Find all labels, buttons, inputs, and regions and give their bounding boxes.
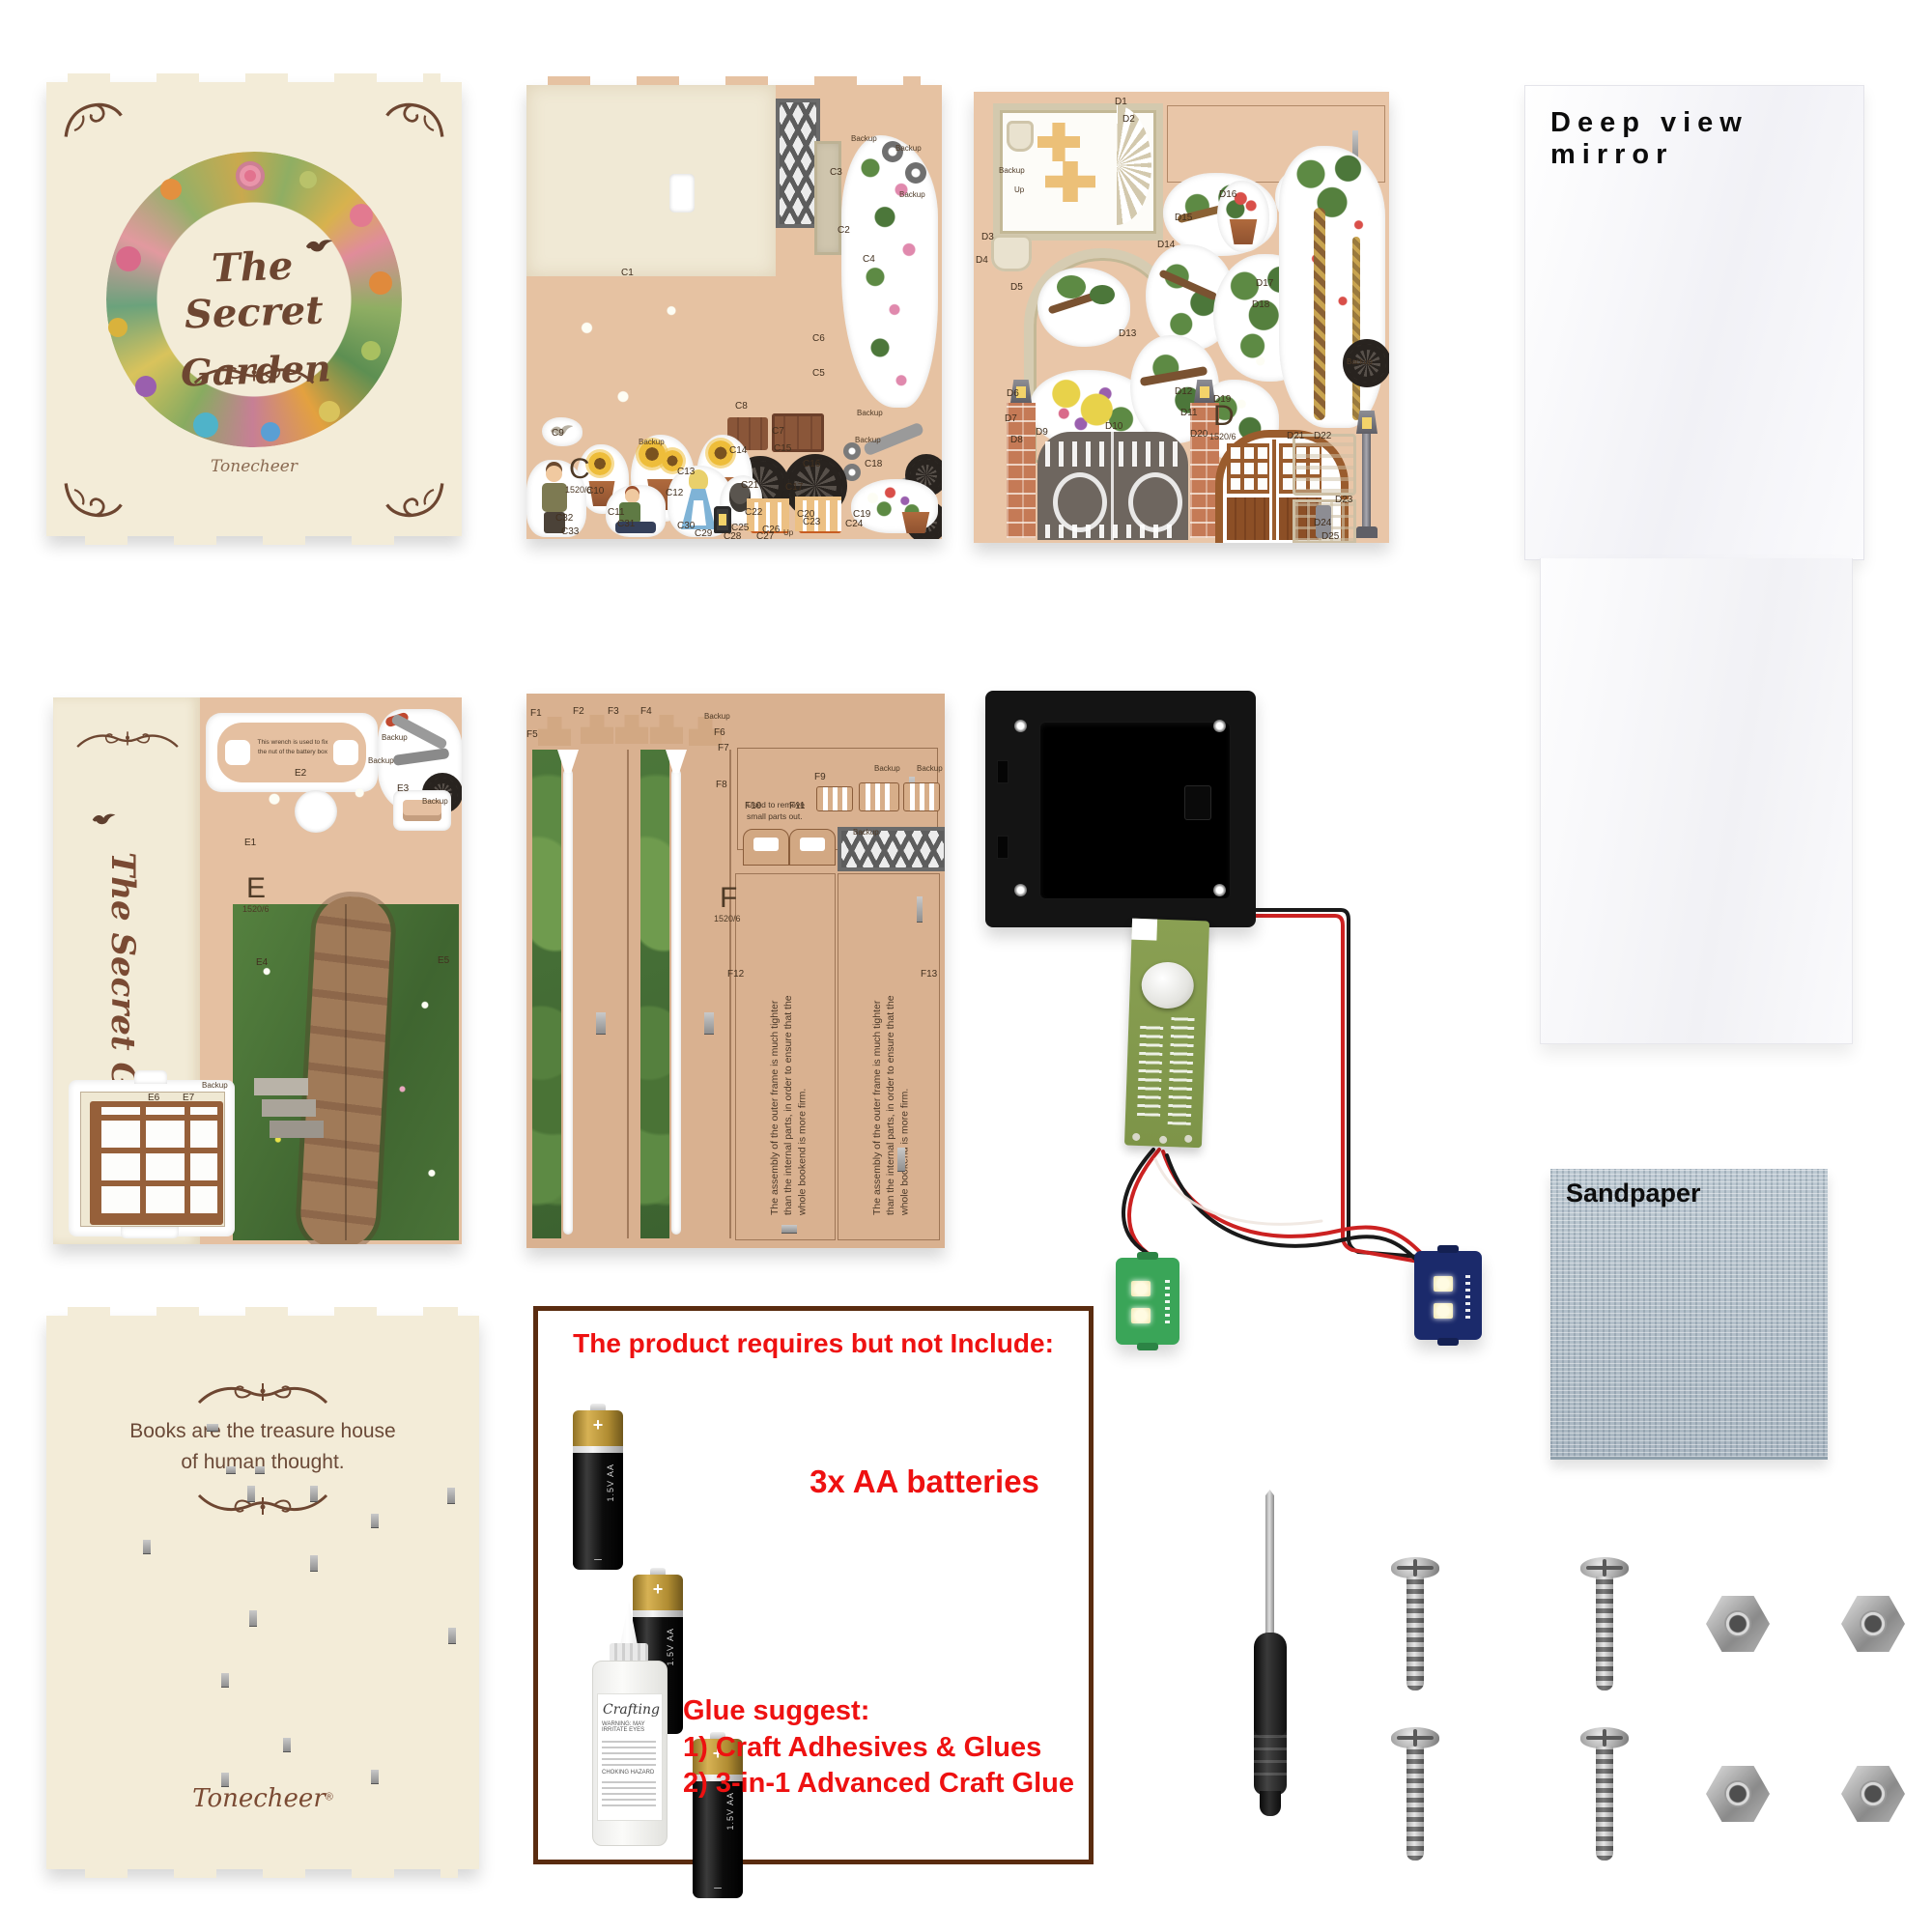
pcb-silkscreen-icon [1137, 1023, 1163, 1117]
clip-part [743, 829, 789, 866]
door-panel-icon [1227, 497, 1269, 540]
wreath-flower-icon [261, 422, 280, 441]
wheelbarrow-frame-part [863, 421, 924, 456]
gate-lamp-icon [1010, 380, 1032, 403]
battery-box [985, 691, 1256, 927]
remove-note: Used to remove small parts out. [747, 800, 816, 823]
module-notch-icon [1437, 1245, 1459, 1253]
battery-minus-label: – [693, 1879, 743, 1894]
garden-path-part [233, 904, 459, 1240]
wreath-flower-icon [350, 204, 373, 227]
tree-trunk-icon [1314, 208, 1325, 420]
crate-part [772, 413, 824, 452]
battery-plus-label: + [573, 1415, 623, 1435]
gate-scroll-icon [1053, 472, 1107, 532]
lamp-base-icon [1356, 526, 1378, 538]
cut-slot [897, 1148, 905, 1171]
quote-line1: Books are the treasure house [46, 1416, 479, 1447]
back-panel-brand: Tonecheer® [46, 1784, 479, 1813]
label-fineprint-icon [602, 1741, 656, 1766]
gate-bars-icon [1045, 441, 1107, 467]
iron-gate-part [1037, 432, 1188, 540]
leaf-cluster-icon [1057, 275, 1086, 298]
screwdriver-shaft-icon [1265, 1490, 1274, 1636]
cut-slot [917, 896, 923, 922]
panel-slot [310, 1555, 318, 1571]
gate-lamp-icon [1194, 380, 1215, 403]
solder-pad-icon [1184, 1135, 1192, 1143]
gate-scroll-icon [1128, 472, 1182, 532]
panel-cut-line [729, 750, 731, 1238]
remove-note-line1: Used to remove [747, 800, 805, 810]
screwdriver [1250, 1490, 1291, 1818]
wheel-part [1343, 339, 1389, 387]
figure-body-icon [619, 502, 640, 524]
vine-icon [1352, 237, 1360, 420]
sheet-f-letter: F [720, 885, 737, 911]
panel-slot [310, 1486, 318, 1501]
screw-hole-icon [1213, 884, 1226, 896]
battery-voltage-label: 1.5V AA [606, 1463, 615, 1502]
deep-view-mirror: Deep view mirror [1524, 85, 1864, 560]
wreath-flower-icon [369, 271, 392, 295]
glue-warning2: CHOKING HAZARD [602, 1770, 654, 1776]
door-seam-icon [1272, 440, 1276, 540]
cut-slit [671, 769, 681, 1235]
bracket-icon [403, 800, 441, 821]
bottle-tip-icon [613, 1601, 644, 1645]
sheet-e-graphics: The Secret Garden This wrench is used to… [53, 697, 462, 1244]
assembly-note: The assembly of the outer frame is much … [768, 983, 810, 1215]
spine-flourish-icon [74, 728, 181, 752]
bracket-part [615, 715, 648, 744]
clip-slot-icon [753, 838, 779, 851]
screw-head-icon [1391, 1727, 1439, 1748]
cover-tab-edge-top [68, 73, 440, 83]
panel-slot [255, 1466, 265, 1473]
sheet-d-code: 1520/6 [1209, 432, 1236, 441]
bracket-part [689, 717, 722, 746]
screw-hole-icon [1213, 720, 1226, 732]
corner-flourish-icon [64, 478, 128, 523]
battery-plus-label: + [633, 1579, 683, 1600]
comb-part [903, 782, 940, 811]
gate-bars-icon [1119, 441, 1180, 467]
clip-part [789, 829, 836, 866]
panel-slot [247, 1486, 255, 1501]
figure-hair-icon [689, 469, 708, 491]
sunflower-icon [662, 450, 683, 471]
registered-mark: ® [326, 1792, 333, 1804]
door-window-grid-icon [1227, 443, 1269, 494]
panel-slot [371, 1770, 379, 1783]
wreath-flower-icon [236, 161, 265, 190]
pcb-notch-icon [1131, 919, 1157, 941]
lattice-window-part [90, 1101, 223, 1225]
brand-text: Tonecheer [192, 1784, 326, 1813]
case-slot-icon [997, 760, 1009, 783]
washer-part [843, 442, 861, 460]
corner-flourish-icon [64, 98, 128, 142]
sheet-d-graphics [974, 92, 1389, 543]
panel-slot [207, 1424, 218, 1431]
corner-flourish-icon [381, 478, 444, 523]
sandpaper-sheet: Sandpaper [1550, 1169, 1828, 1460]
aa-battery: + 1.5V AA – [573, 1404, 623, 1570]
title-flourish-icon [191, 362, 317, 387]
solder-pad-icon [1132, 1133, 1140, 1141]
panel-slot [371, 1514, 379, 1527]
back-panel: Books are the treasure house of human th… [46, 1316, 479, 1869]
foliage-edge-part [532, 750, 561, 1238]
corner-flourish-icon [381, 98, 444, 142]
led-chip-icon [1434, 1303, 1453, 1319]
screw-hole-icon [1014, 884, 1027, 896]
panel-slot [221, 1673, 229, 1687]
back-panel-tab-edge-top [68, 1307, 458, 1317]
swirl-tile-part [991, 235, 1032, 271]
wrench-note-line1: This wrench is used to fix [258, 739, 328, 746]
hex-nut [1841, 1596, 1905, 1652]
screw-shank-icon [1596, 1747, 1613, 1861]
battery-band-icon [573, 1446, 623, 1453]
sheet-c-code: 1520/6 [565, 485, 592, 495]
lid-latch-icon [1184, 785, 1211, 820]
wrench-note-line2: the nut of the battery box [258, 749, 327, 755]
bottle-cap-icon [610, 1643, 648, 1662]
figure-head-icon [625, 489, 639, 503]
stone-steps-icon [262, 1099, 316, 1117]
stone-steps-icon [270, 1121, 324, 1138]
trellis-part [838, 827, 945, 871]
wreath-flower-icon [319, 401, 340, 422]
led-module-green [1116, 1258, 1179, 1345]
bracket-part [538, 717, 571, 746]
sheet-c-letter: C [569, 456, 590, 482]
panel-slot [143, 1540, 151, 1553]
assembly-note: The assembly of the outer frame is much … [870, 983, 913, 1215]
cut-slit [563, 769, 573, 1235]
wrench-part: This wrench is used to fix the nut of th… [217, 723, 366, 782]
street-lamp-icon [1356, 411, 1378, 434]
parts-sheet-d: D1D2D3D4D5D6D7D8D9D10D11D12D13D14D15D16D… [974, 92, 1389, 543]
glue-warning: WARNING: MAY IRRITATE EYES [602, 1721, 658, 1733]
comb-part [816, 786, 853, 811]
panel-slot [283, 1738, 291, 1751]
bird-icon [92, 811, 117, 828]
panel-cut-line [345, 904, 347, 1240]
machine-screw [1580, 1557, 1629, 1694]
glue-suggest-line1: 1) Craft Adhesives & Glues [683, 1730, 1074, 1767]
panel-cut-line [627, 750, 629, 1238]
hex-nut [1841, 1766, 1905, 1822]
battery-group: + 1.5V AA – + 1.5V AA – + [573, 1400, 747, 1574]
not-included-box: The product requires but not Include: + … [533, 1306, 1094, 1864]
handle-tip-icon [1260, 1791, 1281, 1816]
cover-brand: Tonecheer [46, 457, 462, 476]
clip-slot-icon [800, 838, 825, 851]
solder-pad-icon [1159, 1136, 1167, 1144]
handle-ridges-icon [1254, 1731, 1287, 1785]
module-silkscreen-icon [1465, 1274, 1470, 1319]
hex-nut [1706, 1766, 1770, 1822]
hedge-hole-icon [295, 790, 337, 833]
stone-steps-icon [254, 1078, 308, 1095]
sheet-d-letter: D [1213, 403, 1235, 429]
glue-suggestion: Glue suggest: 1) Craft Adhesives & Glues… [683, 1693, 1074, 1803]
sunflower-icon [708, 440, 733, 466]
mirror-label: Deep view mirror [1550, 107, 1863, 171]
panel-slot [447, 1488, 455, 1503]
leaf-cluster-icon [1090, 285, 1115, 304]
canvas-slot [669, 174, 695, 213]
bench-part [1293, 434, 1356, 496]
cut-slot [596, 1012, 606, 1034]
module-notch-icon [1137, 1343, 1158, 1350]
figure-head-icon [546, 466, 562, 482]
wreath-flower-icon [108, 318, 128, 337]
bird-icon [550, 423, 575, 439]
machine-screw [1580, 1727, 1629, 1864]
machine-screw [1391, 1727, 1439, 1864]
led-chip-icon [1131, 1308, 1151, 1323]
glue-suggest-line2: 2) 3-in-1 Advanced Craft Glue [683, 1766, 1074, 1803]
sunflower-icon [588, 452, 611, 475]
lamp-post-part [1362, 432, 1371, 528]
screw-hole-icon [1014, 720, 1027, 732]
screw-head-icon [1580, 1727, 1629, 1748]
parts-sheet-f: Used to remove small parts out. The asse… [526, 694, 945, 1248]
washer-part [882, 141, 903, 162]
sheet-f-code: 1520/6 [714, 914, 741, 923]
post-part [1316, 505, 1331, 538]
figure-legs-icon [615, 522, 656, 533]
figure-body-icon [542, 483, 567, 512]
wreath-flower-icon [299, 171, 317, 188]
module-notch-icon [1137, 1252, 1158, 1260]
wrench-socket-icon [225, 740, 250, 765]
remove-note-line2: small parts out. [747, 811, 803, 821]
wrench-note: This wrench is used to fix the nut of th… [254, 738, 331, 757]
wrench-socket-icon [333, 740, 358, 765]
gate-seam-icon [1111, 432, 1114, 540]
case-slot-icon [997, 836, 1009, 859]
screw-shank-icon [1406, 1577, 1424, 1690]
panel-slot [448, 1628, 456, 1643]
led-chip-icon [1131, 1281, 1151, 1296]
not-included-title: The product requires but not Include: [538, 1328, 1089, 1359]
screw-shank-icon [1596, 1577, 1613, 1690]
window-knob-icon [134, 1070, 167, 1084]
brick-pillar-part [1007, 403, 1036, 538]
cover-panel: The Secret Garden Tonecheer [46, 82, 462, 536]
label-fineprint-icon [602, 1781, 656, 1806]
parts-sheet-e: The Secret Garden This wrench is used to… [53, 697, 462, 1244]
back-panel-tab-edge-bottom [68, 1868, 458, 1878]
sheet-e-code: 1520/6 [242, 904, 270, 914]
sandpaper-label: Sandpaper [1566, 1179, 1701, 1208]
machine-screw [1391, 1557, 1439, 1694]
panel-slot [249, 1610, 257, 1626]
module-notch-icon [1437, 1338, 1459, 1346]
bottle-label: Crafting Glue WARNING: MAY IRRITATE EYES… [597, 1693, 663, 1821]
sheet-f-graphics: Used to remove small parts out. The asse… [526, 694, 945, 1248]
lantern-glow-icon [719, 514, 726, 526]
comb-part [859, 782, 899, 811]
glue-bottle: Crafting Glue WARNING: MAY IRRITATE EYES… [584, 1601, 673, 1848]
screw-shank-icon [1406, 1747, 1424, 1861]
glue-suggest-title: Glue suggest: [683, 1693, 1074, 1730]
wreath-flower-icon [160, 179, 182, 200]
screw-head-icon [1391, 1557, 1439, 1578]
led-module-blue [1414, 1251, 1482, 1340]
foliage-edge-part [640, 750, 669, 1238]
swirl-tile-part [1007, 121, 1034, 152]
fence-part [795, 497, 841, 531]
figure-legs-icon [544, 512, 565, 533]
pcb-silkscreen-icon [1168, 1016, 1195, 1125]
cover-title-line1: The Secret [135, 241, 370, 339]
led-chip-icon [1434, 1276, 1453, 1292]
canvas-blank-part [526, 85, 776, 276]
stone-pillar-part [814, 141, 841, 255]
wreath-flower-icon [193, 412, 218, 438]
window-tab-icon [121, 1227, 179, 1238]
kit-contents-photo: The Secret Garden Tonecheer [0, 0, 1932, 1932]
cover-tab-edge-bottom [68, 535, 440, 545]
sheet-e-letter: E [246, 875, 266, 901]
washer-part [905, 162, 926, 184]
battery-minus-label: – [573, 1550, 623, 1566]
batteries-caption: 3x AA batteries [780, 1463, 1069, 1500]
panel-slot [226, 1466, 236, 1473]
hex-nut [1706, 1596, 1770, 1652]
pir-sensor-icon [1141, 961, 1195, 1009]
cut-slot [704, 1012, 714, 1034]
bracket-part [581, 715, 613, 744]
parts-sheet-c: C1C2C3C4C5C6C7C8C9C10C11C12C13C14C15C16C… [526, 85, 942, 539]
glue-brand: Crafting Glue [603, 1702, 662, 1718]
fence-part [747, 498, 789, 531]
module-silkscreen-icon [1165, 1279, 1170, 1323]
deep-view-mirror-lower [1540, 558, 1853, 1044]
sensor-pcb [1124, 919, 1209, 1149]
cut-slot [781, 1225, 797, 1233]
screw-head-icon [1580, 1557, 1629, 1578]
bracket-part [650, 715, 683, 744]
quote-flourish-icon [195, 1381, 330, 1406]
